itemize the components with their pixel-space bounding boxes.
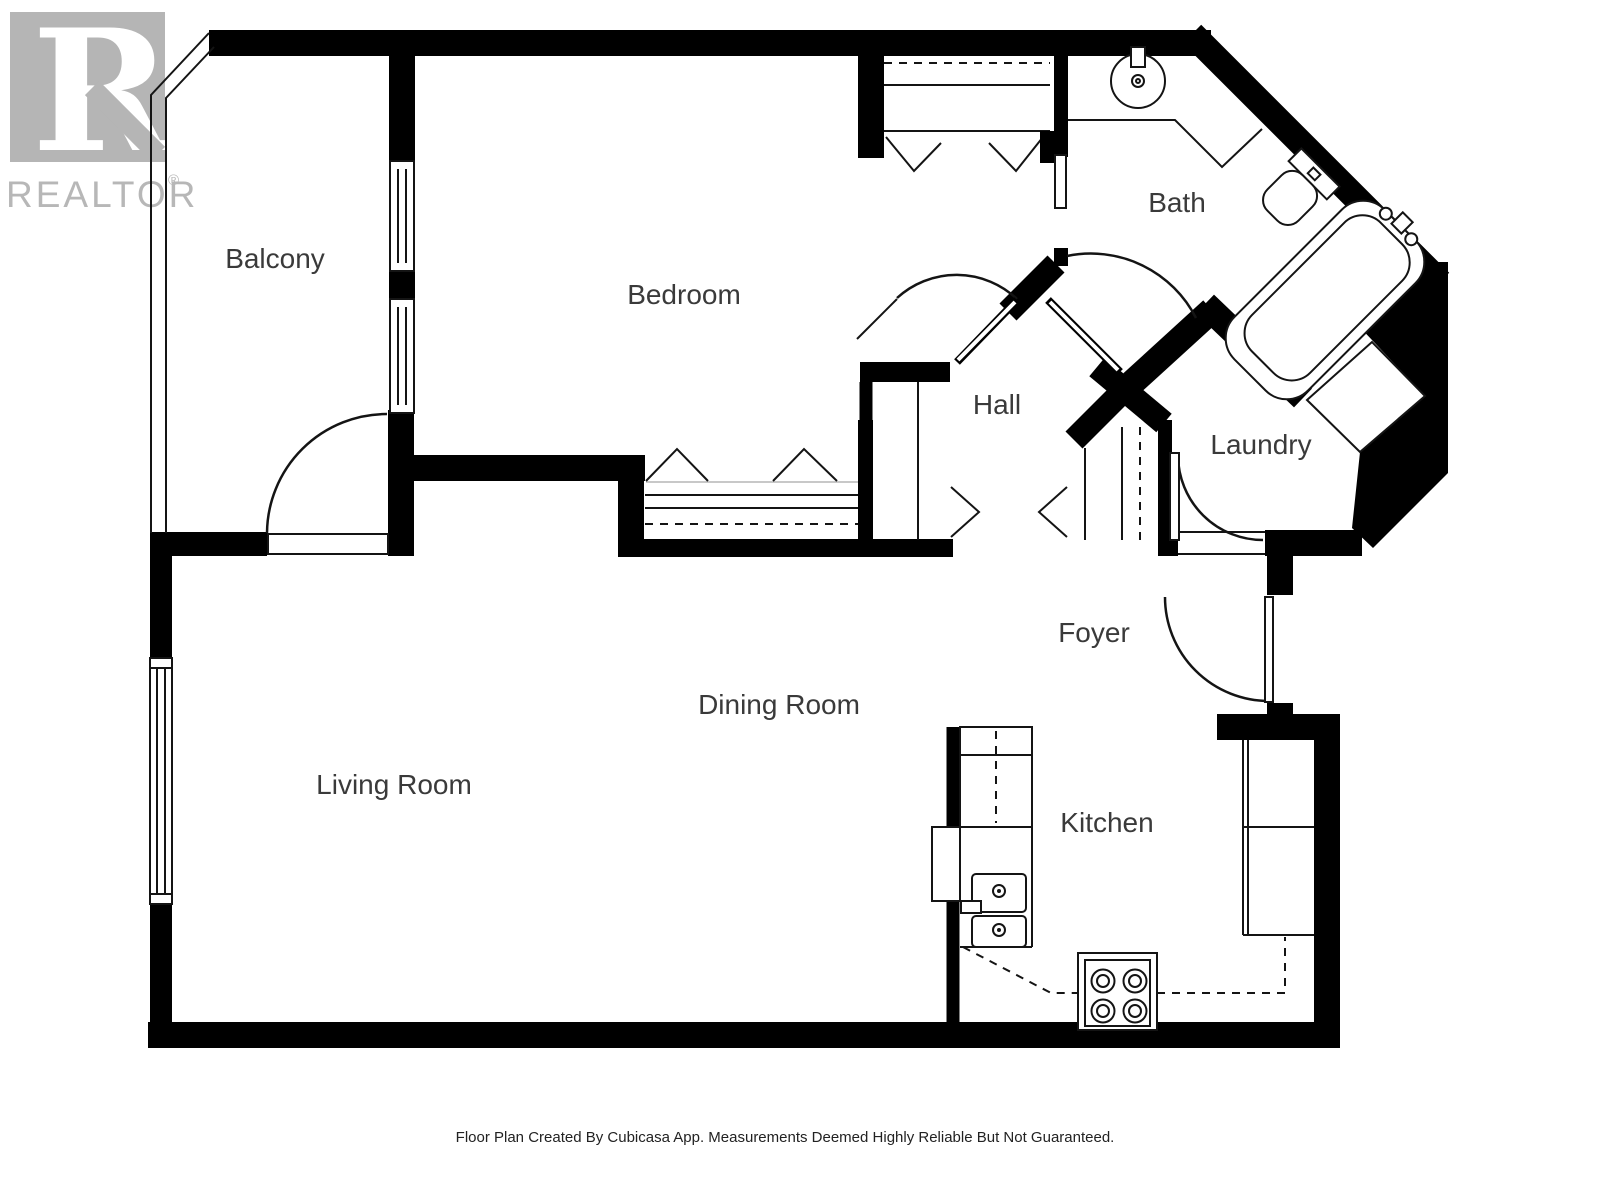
cased-opening-icon bbox=[951, 487, 979, 537]
door-arc bbox=[267, 414, 387, 533]
door-leaf bbox=[1170, 453, 1179, 540]
balcony-railing-inner bbox=[166, 47, 214, 533]
laundry-utility-closet bbox=[1085, 427, 1140, 540]
bifold-door-icon bbox=[773, 449, 837, 481]
room-label-balcony: Balcony bbox=[225, 243, 325, 274]
bedroom-top-closet bbox=[884, 63, 1067, 171]
room-label-dining-room: Dining Room bbox=[698, 689, 860, 720]
room-label-living-room: Living Room bbox=[316, 769, 472, 800]
room-label-kitchen: Kitchen bbox=[1060, 807, 1153, 838]
hall-dining-opening bbox=[951, 487, 1067, 537]
door-arc bbox=[1178, 456, 1263, 540]
wall-closet-peak-diagonal bbox=[1074, 390, 1124, 440]
kitchen-counter-nook bbox=[932, 827, 960, 901]
entry-door bbox=[1165, 595, 1294, 703]
door-leaf bbox=[958, 302, 1015, 360]
closet-hall-divider bbox=[858, 420, 873, 548]
bath-pocket-door bbox=[1055, 155, 1066, 208]
room-label-foyer: Foyer bbox=[1058, 617, 1130, 648]
bedroom-window-1 bbox=[390, 161, 414, 271]
interior-walls bbox=[150, 30, 1303, 1035]
counter-dashed-edge bbox=[963, 947, 1078, 993]
bedroom-bottom-closet bbox=[645, 420, 873, 548]
room-label-hall: Hall bbox=[973, 389, 1021, 420]
door-leaf bbox=[1050, 302, 1118, 370]
registered-trademark-icon: ® bbox=[168, 172, 179, 189]
bath-sink-faucet-icon bbox=[1131, 47, 1145, 67]
balcony-door bbox=[267, 414, 388, 554]
bath-counter-edge bbox=[1068, 120, 1262, 167]
kitchen-faucet-icon bbox=[961, 901, 981, 913]
floor-plan-canvas: R REALTOR ® bbox=[0, 0, 1600, 1200]
door-leaf bbox=[268, 534, 388, 554]
door-arc bbox=[897, 275, 1017, 299]
counter-dashed-edge bbox=[1157, 937, 1285, 993]
bedroom-window-2 bbox=[390, 299, 414, 413]
room-label-bedroom: Bedroom bbox=[627, 279, 741, 310]
room-label-laundry: Laundry bbox=[1210, 429, 1311, 460]
footer-disclaimer: Floor Plan Created By Cubicasa App. Meas… bbox=[456, 1129, 1115, 1146]
door-arc bbox=[1165, 597, 1269, 701]
living-room-window bbox=[150, 658, 172, 904]
kitchen-sink-icon bbox=[961, 874, 1026, 947]
cased-opening-icon bbox=[1039, 487, 1067, 537]
wall-bath-laundry-a bbox=[1132, 310, 1212, 383]
bifold-door-icon bbox=[646, 449, 708, 481]
room-label-bath: Bath bbox=[1148, 187, 1206, 218]
bifold-door-icon bbox=[886, 137, 941, 171]
bedroom-door bbox=[857, 275, 1017, 362]
doorway-opening bbox=[1178, 531, 1265, 555]
kitchen-right-counter bbox=[1243, 740, 1314, 935]
floor-plan-page: R REALTOR ® bbox=[0, 0, 1600, 1200]
stove-icon bbox=[1078, 953, 1157, 1030]
bifold-door-icon bbox=[989, 137, 1043, 171]
door-jamb bbox=[857, 299, 897, 339]
door-leaf bbox=[1265, 597, 1273, 702]
realtor-logo: R REALTOR ® bbox=[6, 0, 198, 215]
kitchen-fixtures bbox=[932, 727, 1314, 1030]
door-arc bbox=[1067, 254, 1196, 318]
laundry-door bbox=[1170, 453, 1265, 555]
pocket-door-leaf bbox=[1055, 155, 1066, 208]
